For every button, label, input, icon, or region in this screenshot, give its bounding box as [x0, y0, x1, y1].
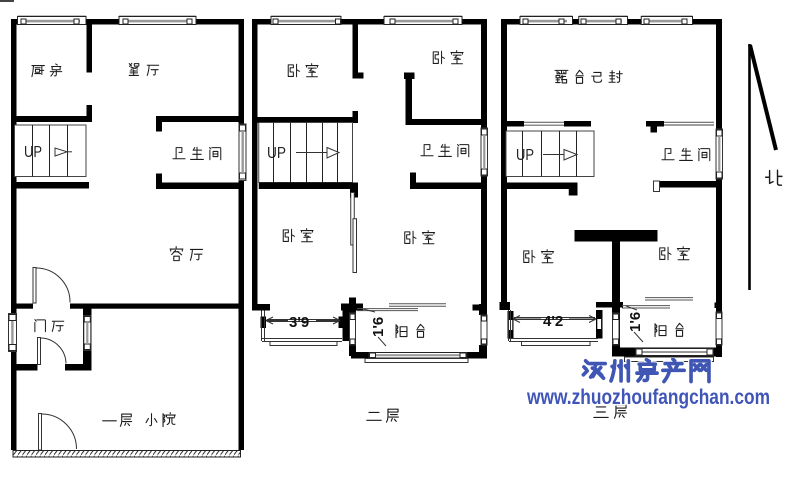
svg-text:UP: UP	[267, 145, 286, 162]
svg-text:UP: UP	[516, 147, 534, 164]
svg-text:1'6: 1'6	[370, 317, 387, 337]
svg-text:1'6: 1'6	[627, 312, 644, 332]
svg-text:3'9: 3'9	[289, 314, 309, 331]
svg-text:www.zhuozhoufangchan.com: www.zhuozhoufangchan.com	[526, 385, 770, 409]
svg-text:UP: UP	[24, 144, 42, 161]
svg-text:4'2: 4'2	[543, 313, 563, 330]
